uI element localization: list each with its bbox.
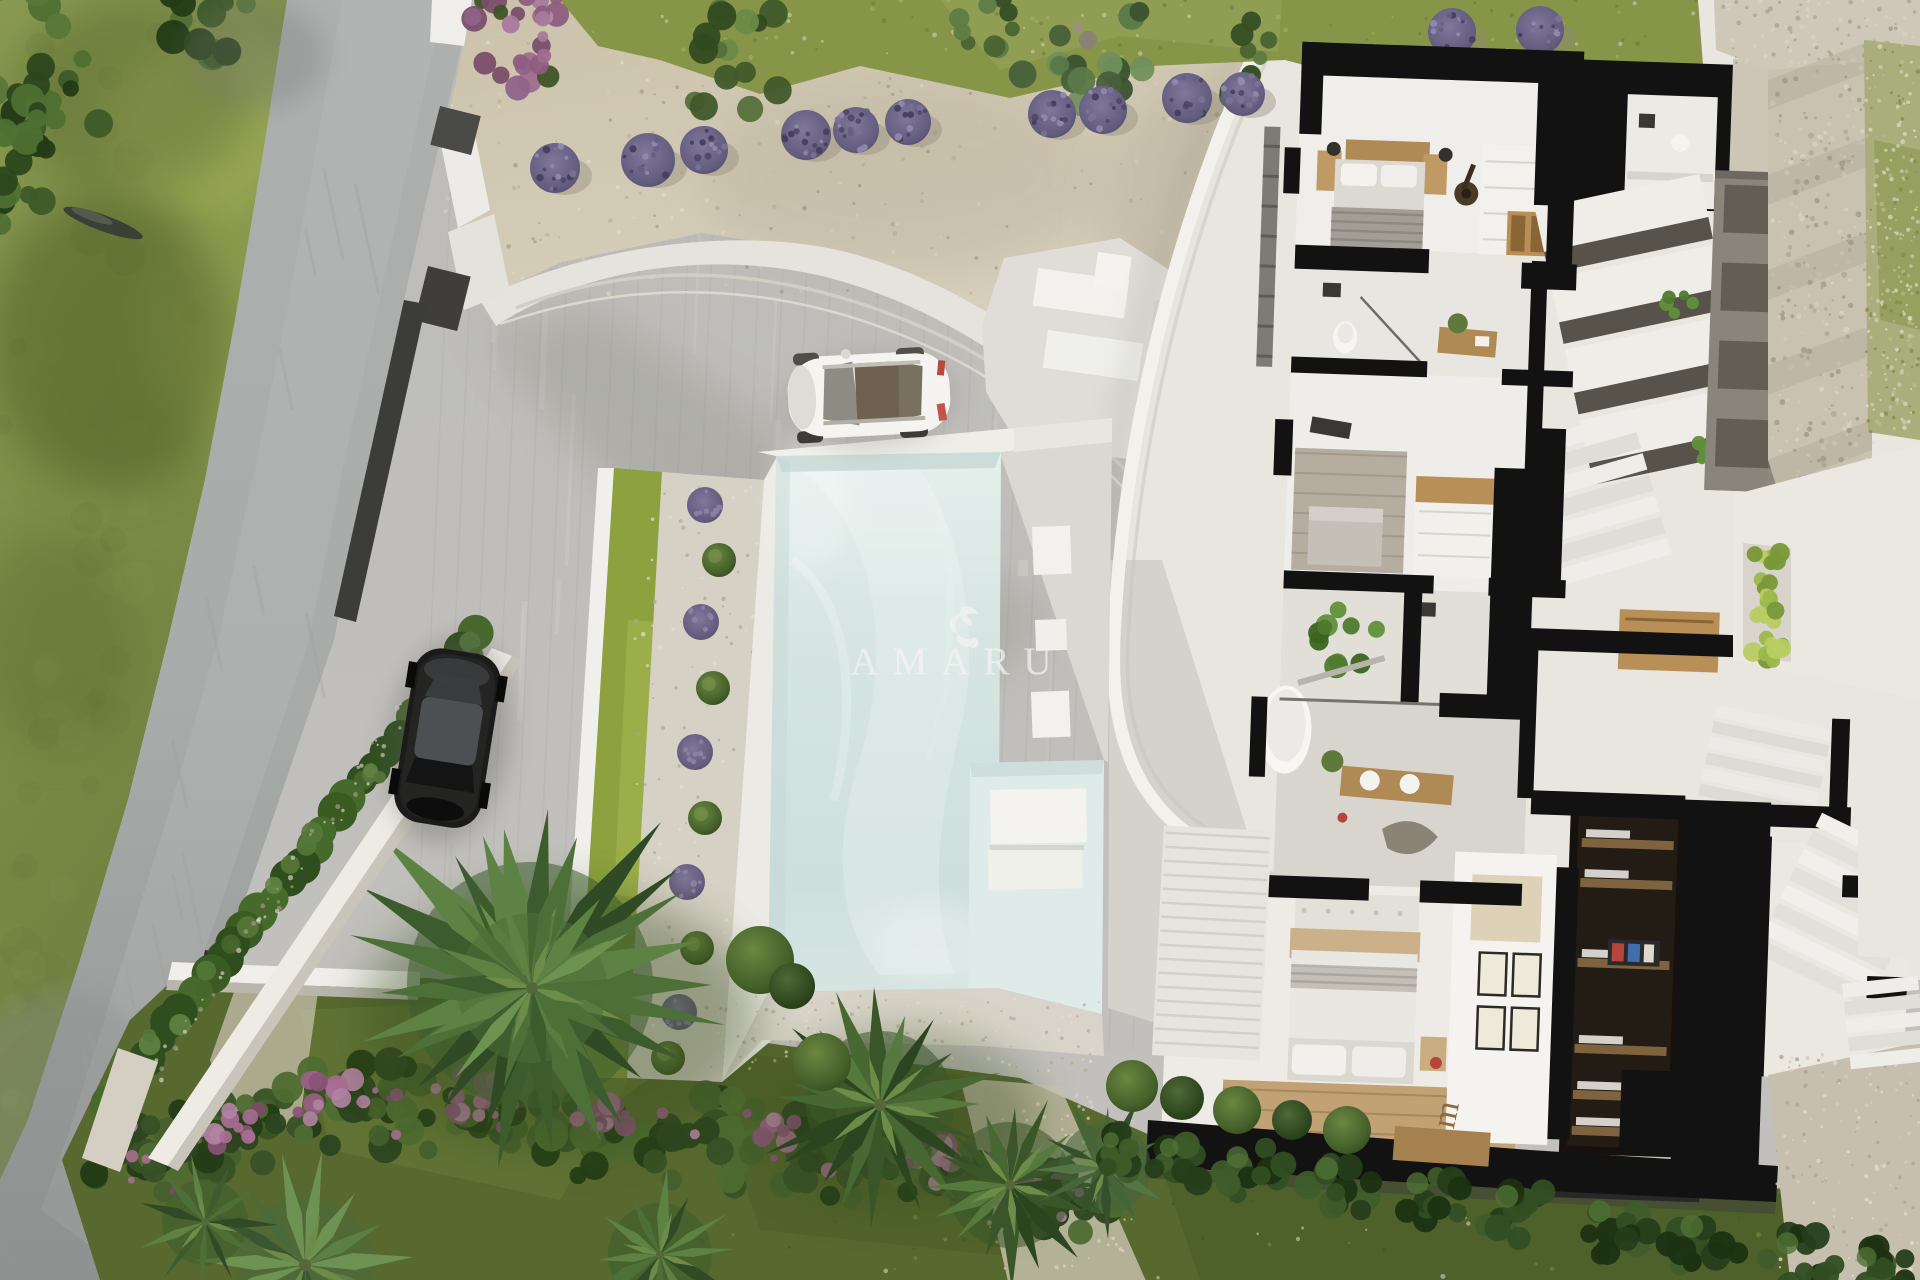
- svg-text:AMARU: AMARU: [850, 640, 1065, 683]
